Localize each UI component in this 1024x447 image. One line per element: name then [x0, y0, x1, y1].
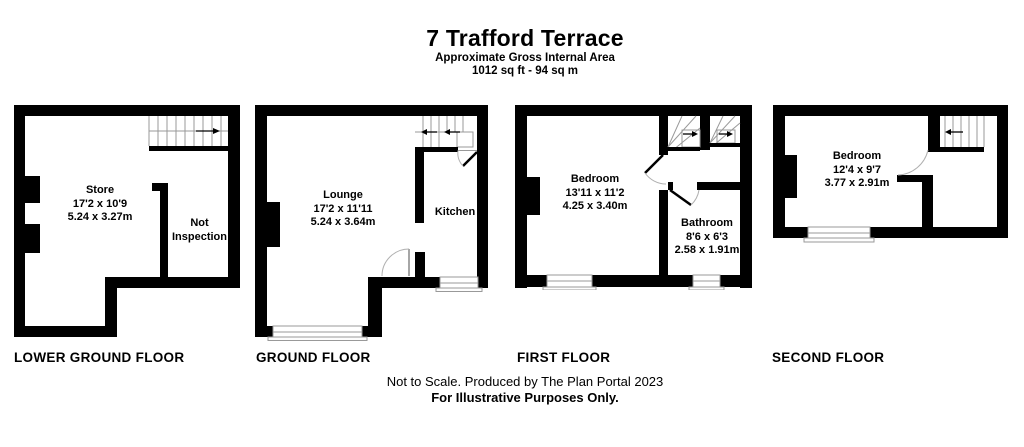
page-subtitle: Approximate Gross Internal Area: [0, 52, 1024, 64]
page-title: 7 Trafford Terrace: [0, 25, 1024, 52]
staircase: [149, 116, 229, 151]
floor-caption-ground: GROUND FLOOR: [256, 350, 371, 365]
partition-wall: [152, 183, 168, 191]
room-name: Bedroom: [540, 173, 650, 187]
room-size-imperial: 8'6 x 6'3: [652, 231, 762, 245]
stair-wall: [928, 113, 940, 150]
chimney-breast: [25, 224, 40, 253]
chimney-breast: [267, 202, 280, 247]
room-label-bathroom: Bathroom 8'6 x 6'3 2.58 x 1.91m: [652, 217, 762, 258]
staircase: [415, 116, 477, 152]
room-name: Bathroom: [652, 217, 762, 231]
room-label-bedroom-second: Bedroom 12'4 x 9'7 3.77 x 2.91m: [802, 150, 912, 191]
chimney-breast: [527, 177, 540, 215]
floor-caption-first: FIRST FLOOR: [517, 350, 610, 365]
floor-caption-lower-ground: LOWER GROUND FLOOR: [14, 350, 184, 365]
bathroom-wall: [697, 182, 752, 190]
room-label-not-inspection: Not Inspection: [163, 217, 236, 244]
floor-caption-second: SECOND FLOOR: [772, 350, 884, 365]
lounge-door: [382, 249, 409, 276]
floorplan-page: 7 Trafford Terrace Approximate Gross Int…: [0, 0, 1024, 447]
room-name: Not Inspection: [163, 217, 236, 244]
room-size-metric: 5.24 x 3.27m: [50, 211, 150, 225]
bathroom-door: [670, 190, 699, 205]
room-size-metric: 2.58 x 1.91m: [652, 244, 762, 258]
lounge-window: [268, 326, 367, 341]
room-size-metric: 5.24 x 3.64m: [288, 216, 398, 230]
bathroom-window: [689, 275, 724, 290]
room-size-imperial: 13'11 x 11'2: [540, 187, 650, 201]
partition-wall: [922, 175, 933, 238]
kitchen-window: [436, 277, 482, 292]
room-label-bedroom-first: Bedroom 13'11 x 11'2 4.25 x 3.40m: [540, 173, 650, 214]
room-name: Bedroom: [802, 150, 912, 164]
partition-wall: [659, 113, 668, 155]
door-jamb: [415, 252, 425, 277]
room-size-imperial: 17'2 x 10'9: [50, 198, 150, 212]
room-name: Kitchen: [415, 206, 495, 220]
staircase: [668, 113, 740, 151]
room-size-metric: 4.25 x 3.40m: [540, 200, 650, 214]
footer-disclaimer: Not to Scale. Produced by The Plan Porta…: [0, 374, 1024, 389]
kitchen-door: [458, 151, 477, 167]
gross-internal-area: 1012 sq ft - 94 sq m: [0, 65, 1024, 77]
room-label-kitchen: Kitchen: [415, 206, 495, 220]
room-label-lounge: Lounge 17'2 x 11'11 5.24 x 3.64m: [288, 189, 398, 230]
chimney-breast: [785, 155, 797, 198]
room-size-metric: 3.77 x 2.91m: [802, 177, 912, 191]
footer-illustrative-note: For Illustrative Purposes Only.: [0, 390, 1024, 405]
room-label-store: Store 17'2 x 10'9 5.24 x 3.27m: [50, 184, 150, 225]
bedroom-window: [804, 227, 874, 242]
room-size-imperial: 12'4 x 9'7: [802, 164, 912, 178]
room-name: Lounge: [288, 189, 398, 203]
room-size-imperial: 17'2 x 11'11: [288, 203, 398, 217]
bathroom-wall: [668, 182, 673, 190]
stair-landing: [457, 132, 473, 147]
chimney-breast: [25, 176, 40, 203]
bedroom-window: [543, 275, 596, 290]
room-name: Store: [50, 184, 150, 198]
